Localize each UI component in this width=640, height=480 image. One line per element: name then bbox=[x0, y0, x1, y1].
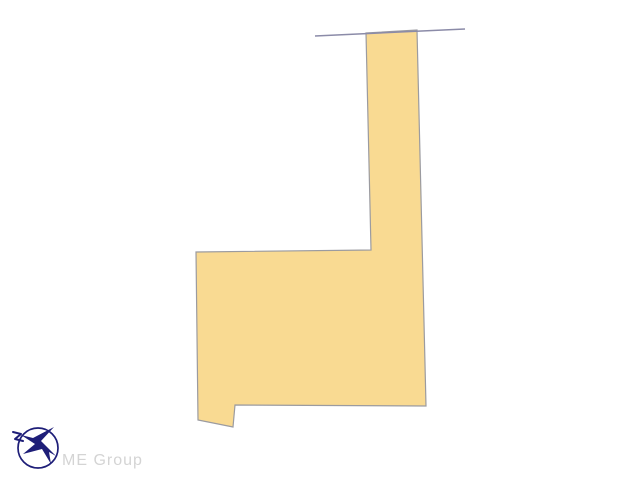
brand-text: ME Group bbox=[62, 452, 143, 469]
parcel-diagram bbox=[0, 0, 640, 480]
land-parcel-shape bbox=[196, 30, 426, 427]
me-group-logo: ME Group bbox=[8, 418, 208, 480]
plot-diagram-canvas: ME Group bbox=[0, 0, 640, 480]
